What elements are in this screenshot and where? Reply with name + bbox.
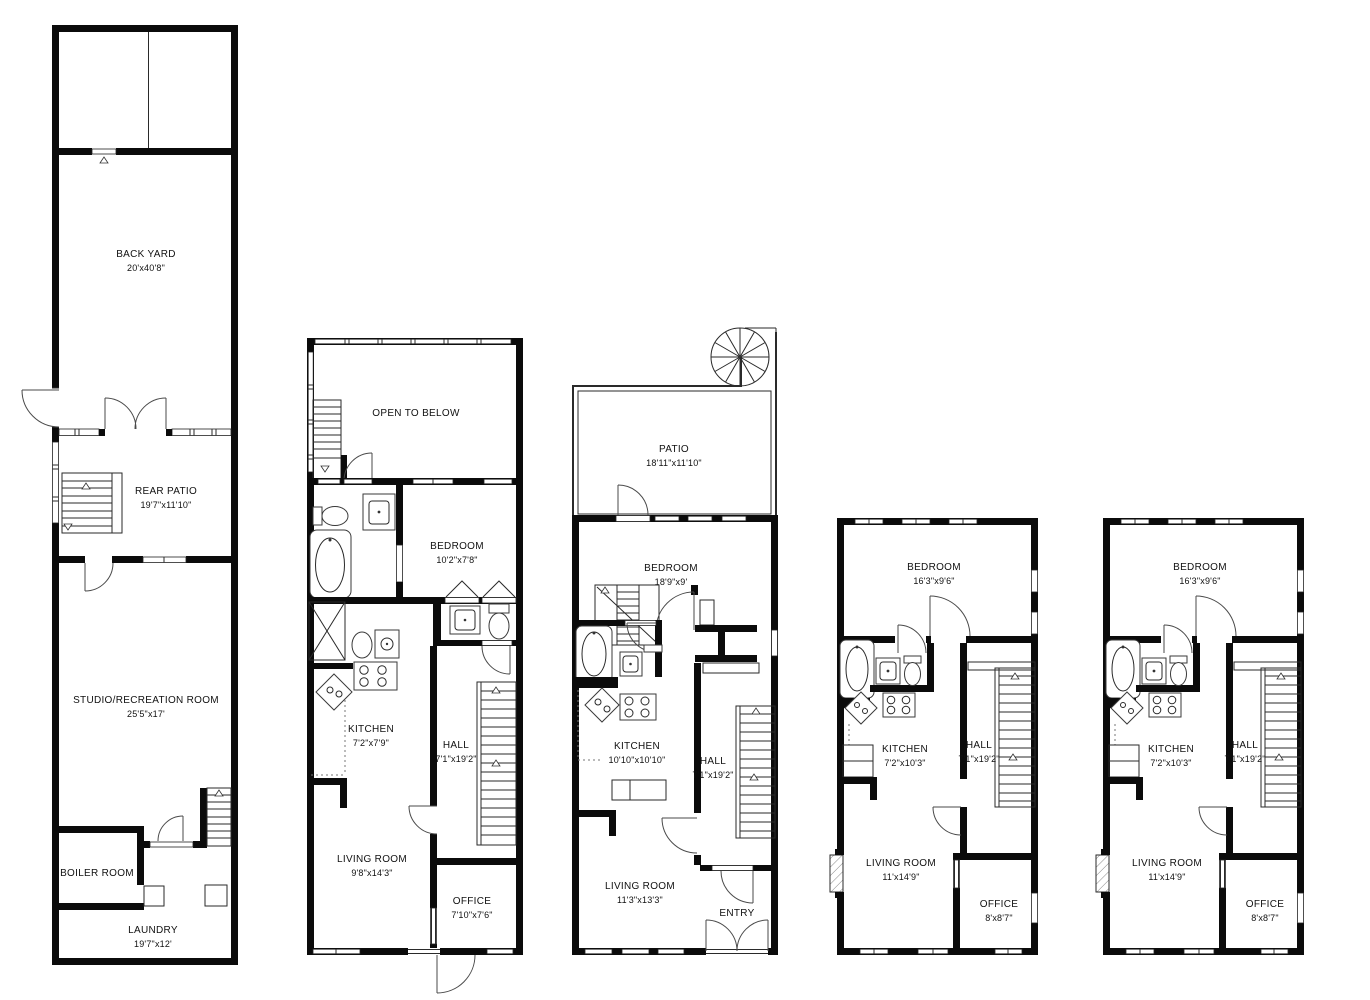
room-label: BACK YARD: [116, 249, 176, 260]
room-label: OPEN TO BELOW: [372, 408, 460, 419]
room-label: LIVING ROOM: [866, 858, 936, 869]
room-dims: 7'1"x19'2": [958, 754, 999, 764]
room-dims: 19'7"x12': [134, 939, 172, 949]
room-label: OFFICE: [453, 896, 491, 907]
room-label: LIVING ROOM: [605, 881, 675, 892]
room-dims: 10'10"x10'10": [609, 755, 666, 765]
room-label: KITCHEN: [348, 724, 394, 735]
room-label: KITCHEN: [614, 741, 660, 752]
sink-icon: [352, 630, 399, 658]
room-dims: 11'x14'9": [882, 872, 919, 882]
room-dims: 7'1"x19'2": [435, 754, 476, 764]
room-dims: 7'10"x7'6": [451, 910, 492, 920]
room-label: REAR PATIO: [135, 486, 197, 497]
room-label: KITCHEN: [882, 744, 928, 755]
room-dims: 20'x40'8": [127, 263, 165, 273]
room-label: HALL: [1232, 740, 1258, 751]
room-label: BEDROOM: [1173, 562, 1227, 573]
room-label: HALL: [700, 756, 726, 767]
office-door-sill: [431, 908, 437, 944]
room-label: HALL: [443, 740, 469, 751]
room-label: ENTRY: [719, 908, 754, 919]
floor-plans-svg: BACK YARD 20'x40'8" REAR PATIO 19'7"x11'…: [0, 0, 1370, 1000]
room-dims: 8'x8'7": [1251, 913, 1279, 923]
room-label: PATIO: [659, 444, 689, 455]
room-dims: 11'x14'9": [1148, 872, 1185, 882]
room-dims: 16'3"x9'6": [1179, 576, 1220, 586]
room-dims: 9'8"x14'3": [351, 868, 392, 878]
room-label: STUDIO/RECREATION ROOM: [73, 695, 219, 706]
room-dims: 7'1"x19'2": [1224, 754, 1265, 764]
room-label: OFFICE: [1246, 899, 1284, 910]
room-label: BEDROOM: [430, 541, 484, 552]
room-label: BEDROOM: [907, 562, 961, 573]
room-dims: 7'1"x19'2": [692, 770, 733, 780]
room-label: BEDROOM: [644, 563, 698, 574]
room-label: LIVING ROOM: [337, 854, 407, 865]
room-dims: 8'x8'7": [985, 913, 1013, 923]
room-dims: 16'3"x9'6": [913, 576, 954, 586]
room-dims: 7'2"x7'9": [353, 738, 389, 748]
room-dims: 11'3"x13'3": [617, 895, 663, 905]
room-dims: 18'9"x9': [655, 577, 688, 587]
door-sill: [397, 545, 403, 582]
room-dims: 7'2"x10'3": [884, 758, 925, 768]
room-dims: 25'5"x17': [127, 709, 165, 719]
room-label: LIVING ROOM: [1132, 858, 1202, 869]
room-dims: 10'2"x7'8": [436, 555, 477, 565]
floor-plans-canvas: BACK YARD 20'x40'8" REAR PATIO 19'7"x11'…: [0, 0, 1370, 1000]
room-label: OFFICE: [980, 899, 1018, 910]
stove-icon: [354, 662, 397, 690]
room-label: KITCHEN: [1148, 744, 1194, 755]
room-dims: 7'2"x10'3": [1150, 758, 1191, 768]
room-label: HALL: [966, 740, 992, 751]
patio-railing: [53, 442, 59, 523]
room-label: LAUNDRY: [128, 925, 178, 936]
room-label: BOILER ROOM: [60, 868, 134, 879]
room-dims: 19'7"x11'10": [140, 500, 191, 510]
room-dims: 18'11"x11'10": [646, 458, 702, 468]
